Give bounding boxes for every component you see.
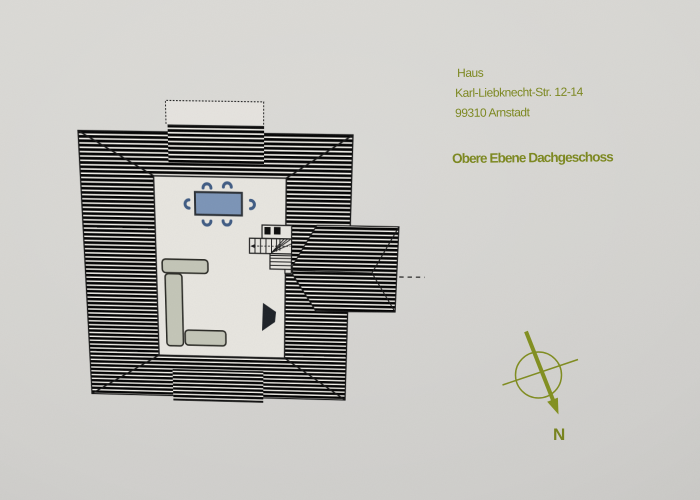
svg-text:N: N [553,425,565,444]
